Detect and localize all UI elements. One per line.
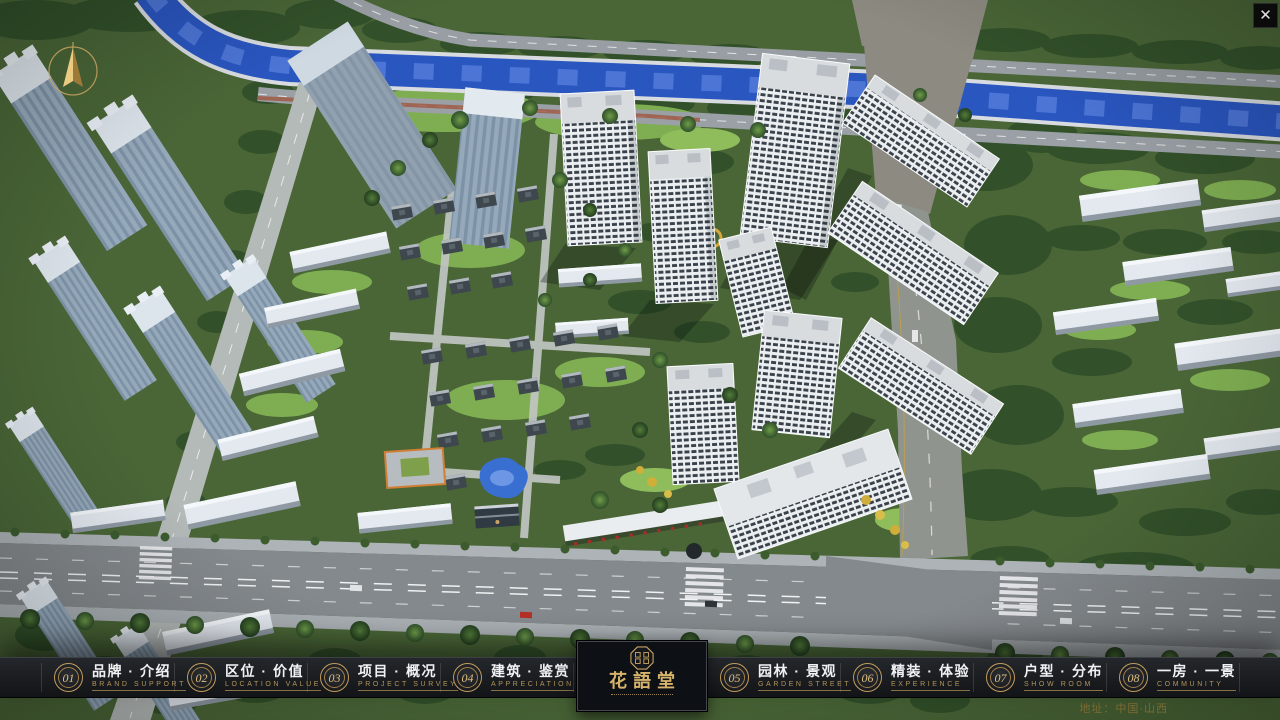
- menu-label-zh: 一房 · 一景: [1157, 664, 1236, 679]
- menu-label-zh: 品牌 · 介绍: [92, 664, 186, 679]
- menu-item-floorplan[interactable]: 07 户型 · 分布 SHOW ROOM: [973, 658, 1106, 697]
- menu-badge-icon: 06: [853, 663, 882, 692]
- menu-label-zh: 建筑 · 鉴赏: [491, 664, 574, 679]
- menu-badge-icon: 08: [1119, 663, 1148, 692]
- close-button[interactable]: ✕: [1253, 3, 1278, 28]
- logo-home-button[interactable]: 花語堂: [577, 641, 707, 711]
- menu-item-interior[interactable]: 06 精装 · 体验 EXPERIENCE: [840, 658, 973, 697]
- menu-label-zh: 户型 · 分布: [1024, 664, 1103, 679]
- site-plan-3d-viewport[interactable]: [0, 0, 1280, 720]
- presentation-window: ✕ 01 品牌 · 介绍 BRAND SUPPORT 02 区位 · 价值 LO…: [0, 0, 1280, 720]
- brand-seal-icon: [630, 646, 654, 670]
- menu-label-en: APPRECIATION: [491, 681, 574, 691]
- menu-label-en: BRAND SUPPORT: [92, 681, 186, 691]
- menu-item-garden[interactable]: 05 园林 · 景观 GARDEN STREET: [707, 658, 840, 697]
- menu-badge-icon: 07: [986, 663, 1015, 692]
- close-icon: ✕: [1259, 8, 1272, 23]
- menu-separator: [1239, 663, 1240, 692]
- menu-badge-icon: 04: [453, 663, 482, 692]
- menu-badge-icon: 05: [720, 663, 749, 692]
- menu-badge-icon: 01: [54, 663, 83, 692]
- menu-label-en: COMMUNITY: [1157, 681, 1236, 691]
- menu-badge-icon: 02: [187, 663, 216, 692]
- menu-badge-icon: 03: [320, 663, 349, 692]
- menu-item-project[interactable]: 03 项目 · 概况 PROJECT SURVEY: [307, 658, 440, 697]
- menu-item-brand[interactable]: 01 品牌 · 介绍 BRAND SUPPORT: [41, 658, 174, 697]
- menu-item-location[interactable]: 02 区位 · 价值 LOCATION VALUE: [174, 658, 307, 697]
- brand-tagline-rule: [611, 694, 673, 695]
- menu-label-en: SHOW ROOM: [1024, 681, 1103, 691]
- menu-item-views[interactable]: 08 一房 · 一景 COMMUNITY: [1106, 658, 1239, 697]
- project-address: 地址：中国·山西: [1079, 700, 1168, 716]
- brand-title: 花語堂: [603, 672, 681, 690]
- menu-label-en: GARDEN STREET: [758, 681, 851, 691]
- menu-item-architecture[interactable]: 04 建筑 · 鉴赏 APPRECIATION: [440, 658, 573, 697]
- menu-label-zh: 园林 · 景观: [758, 664, 851, 679]
- menu-label-zh: 精装 · 体验: [891, 664, 970, 679]
- compass-icon: [44, 42, 102, 100]
- entrance-gate: [474, 503, 519, 528]
- menu-label-en: EXPERIENCE: [891, 681, 970, 691]
